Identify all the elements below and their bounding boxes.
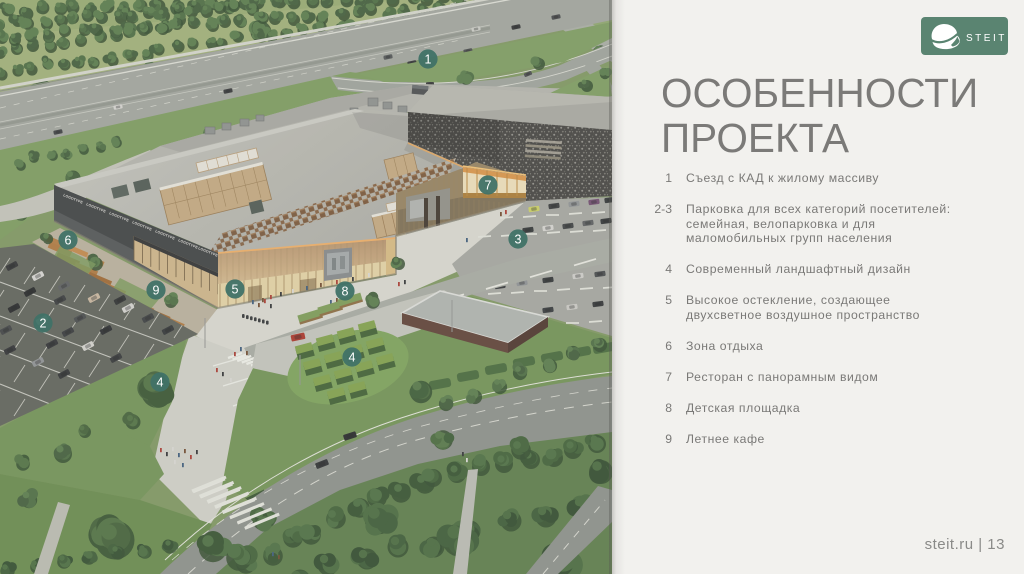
svg-text:4: 4 [349,350,356,364]
svg-text:1: 1 [425,52,432,66]
svg-text:STEIT: STEIT [966,33,1007,44]
svg-text:7: 7 [485,178,492,192]
svg-text:9: 9 [153,283,160,297]
svg-text:8: 8 [342,284,349,298]
svg-text:5: 5 [232,282,239,296]
svg-text:6: 6 [65,233,72,247]
svg-text:2: 2 [40,316,47,330]
svg-text:3: 3 [515,232,522,246]
svg-text:4: 4 [157,375,164,389]
